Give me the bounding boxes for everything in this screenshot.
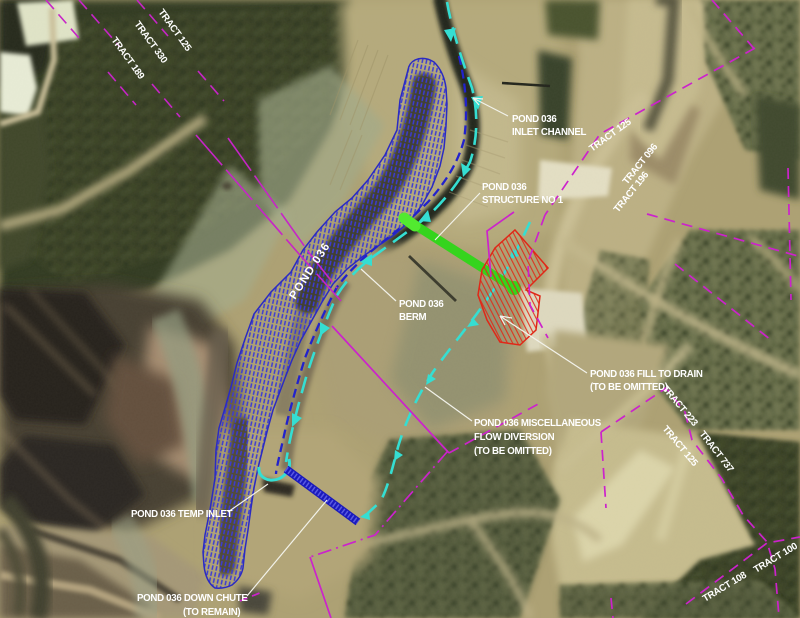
- svg-text:POND 036 DOWN CHUTE: POND 036 DOWN CHUTE: [137, 593, 248, 604]
- svg-text:INLET CHANNEL: INLET CHANNEL: [512, 127, 587, 138]
- svg-text:POND 036: POND 036: [399, 299, 444, 310]
- svg-text:POND 036: POND 036: [482, 182, 527, 193]
- svg-text:POND 036 MISCELLANEOUS: POND 036 MISCELLANEOUS: [474, 418, 602, 429]
- svg-text:BERM: BERM: [399, 312, 427, 323]
- svg-text:POND 036: POND 036: [512, 114, 557, 125]
- svg-text:(TO BE OMITTED): (TO BE OMITTED): [590, 382, 668, 393]
- svg-text:POND 036 FILL TO DRAIN: POND 036 FILL TO DRAIN: [590, 369, 703, 380]
- svg-text:FLOW DIVERSION: FLOW DIVERSION: [474, 432, 555, 443]
- svg-text:POND 036 TEMP INLET: POND 036 TEMP INLET: [131, 509, 233, 520]
- svg-text:(TO BE OMITTED): (TO BE OMITTED): [474, 446, 552, 457]
- svg-text:STRUCTURE NO 1: STRUCTURE NO 1: [482, 195, 564, 206]
- svg-text:(TO REMAIN): (TO REMAIN): [183, 607, 240, 618]
